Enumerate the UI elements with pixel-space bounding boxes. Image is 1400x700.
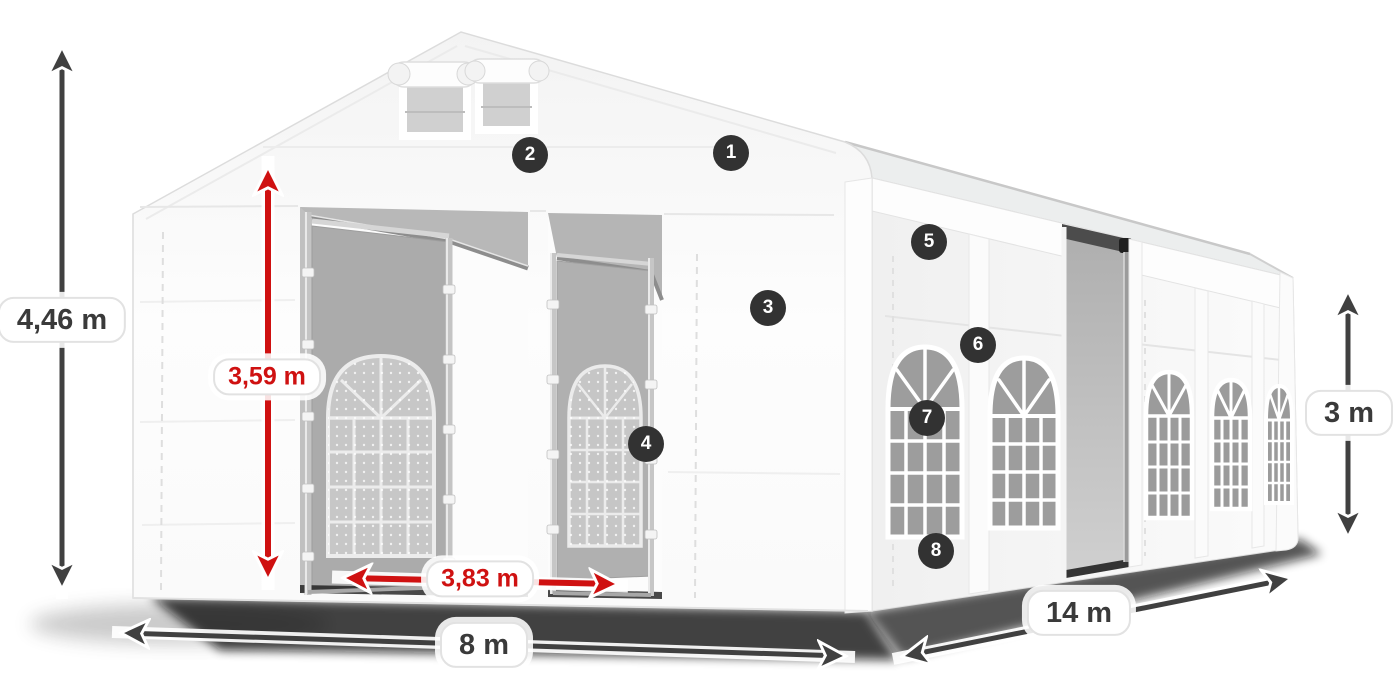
door-panel-right <box>557 261 652 580</box>
dim-label-entrance-height: 3,59 m <box>213 358 321 395</box>
callout-badge-7[interactable]: 7 <box>909 400 945 436</box>
dim-label-total-height: 4,46 m <box>0 297 126 343</box>
callout-badge-1[interactable]: 1 <box>713 135 749 171</box>
callout-badge-5[interactable]: 5 <box>911 224 947 260</box>
side-window-1 <box>888 347 962 537</box>
tent-illustration <box>0 0 1400 700</box>
gable-vent-right <box>465 59 549 130</box>
tent-dimension-diagram: 4,46 m 3,59 m 3,83 m 8 m 14 m 3 m 1 2 3 … <box>0 0 1400 700</box>
dim-label-side-length: 14 m <box>1027 590 1131 636</box>
side-window-4 <box>1212 380 1250 509</box>
side-window-3 <box>1146 372 1192 518</box>
callout-badge-2[interactable]: 2 <box>512 137 548 173</box>
dim-label-wall-height: 3 m <box>1305 390 1393 436</box>
side-window-5 <box>1266 386 1292 503</box>
callout-badge-3[interactable]: 3 <box>750 290 786 326</box>
front-corner-post <box>845 178 872 613</box>
callout-badge-8[interactable]: 8 <box>918 533 954 569</box>
front-opening-left <box>300 207 528 597</box>
callout-badge-4[interactable]: 4 <box>628 426 664 462</box>
door-panel-left <box>312 226 449 590</box>
side-doorway <box>1062 224 1132 578</box>
side-window-2 <box>990 358 1058 528</box>
front-opening-right <box>548 213 662 599</box>
dim-label-front-width: 8 m <box>440 622 528 668</box>
dim-label-entrance-width: 3,83 m <box>426 560 534 597</box>
callout-badge-6[interactable]: 6 <box>960 327 996 363</box>
